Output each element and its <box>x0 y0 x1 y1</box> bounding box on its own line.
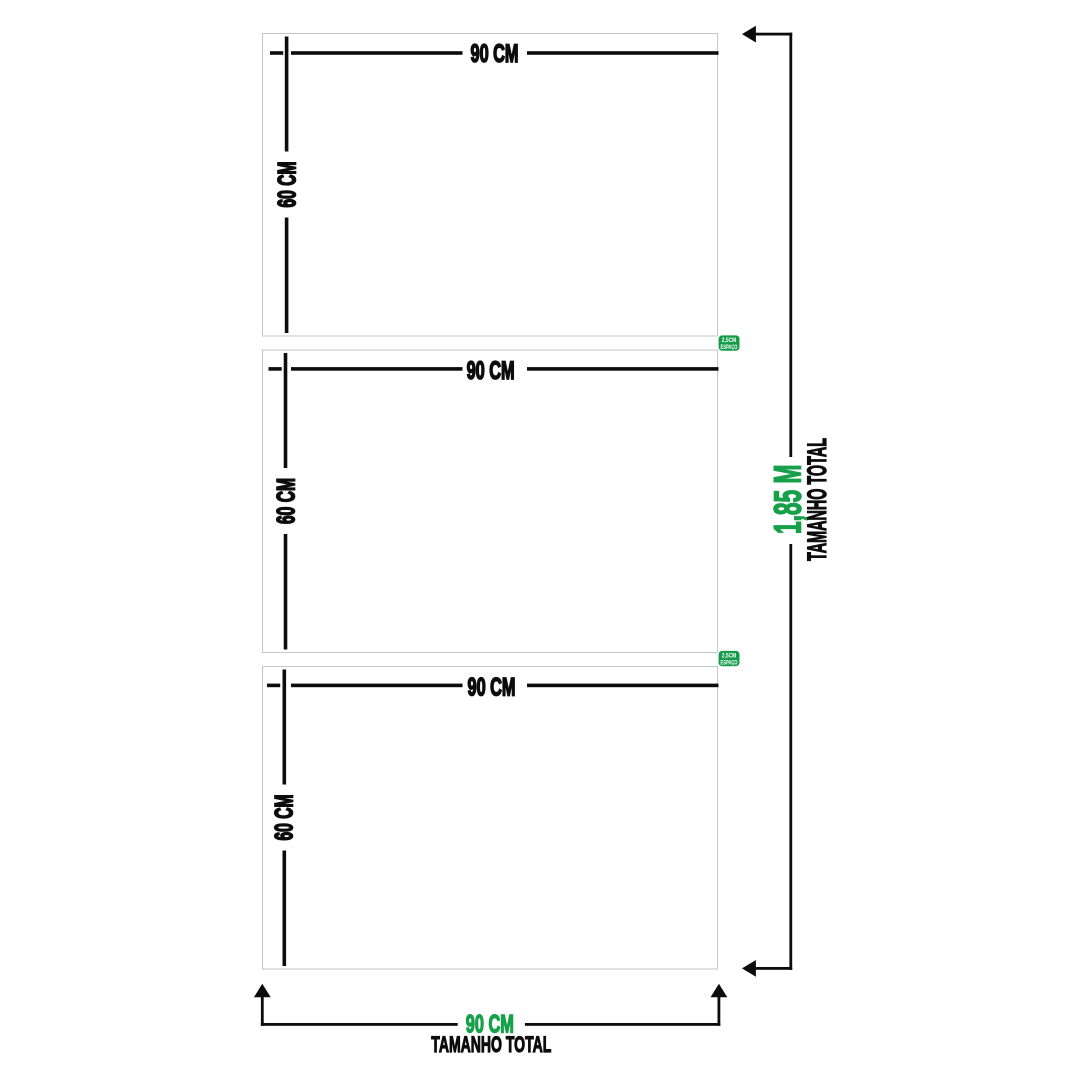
svg-text:90 CM: 90 CM <box>468 673 516 701</box>
svg-text:60 CM: 60 CM <box>274 162 302 208</box>
svg-text:ESPAÇO: ESPAÇO <box>721 660 738 666</box>
svg-text:90 CM: 90 CM <box>467 357 515 385</box>
svg-text:60 CM: 60 CM <box>271 795 299 841</box>
svg-text:2,5CM: 2,5CM <box>722 338 737 344</box>
svg-text:ESPAÇO: ESPAÇO <box>721 345 738 351</box>
svg-text:TAMANHO TOTAL: TAMANHO TOTAL <box>802 438 832 561</box>
svg-text:2,5CM: 2,5CM <box>722 654 737 660</box>
svg-text:60 CM: 60 CM <box>273 478 301 524</box>
svg-text:90 CM: 90 CM <box>471 40 519 68</box>
svg-text:TAMANHO TOTAL: TAMANHO TOTAL <box>431 1032 551 1057</box>
